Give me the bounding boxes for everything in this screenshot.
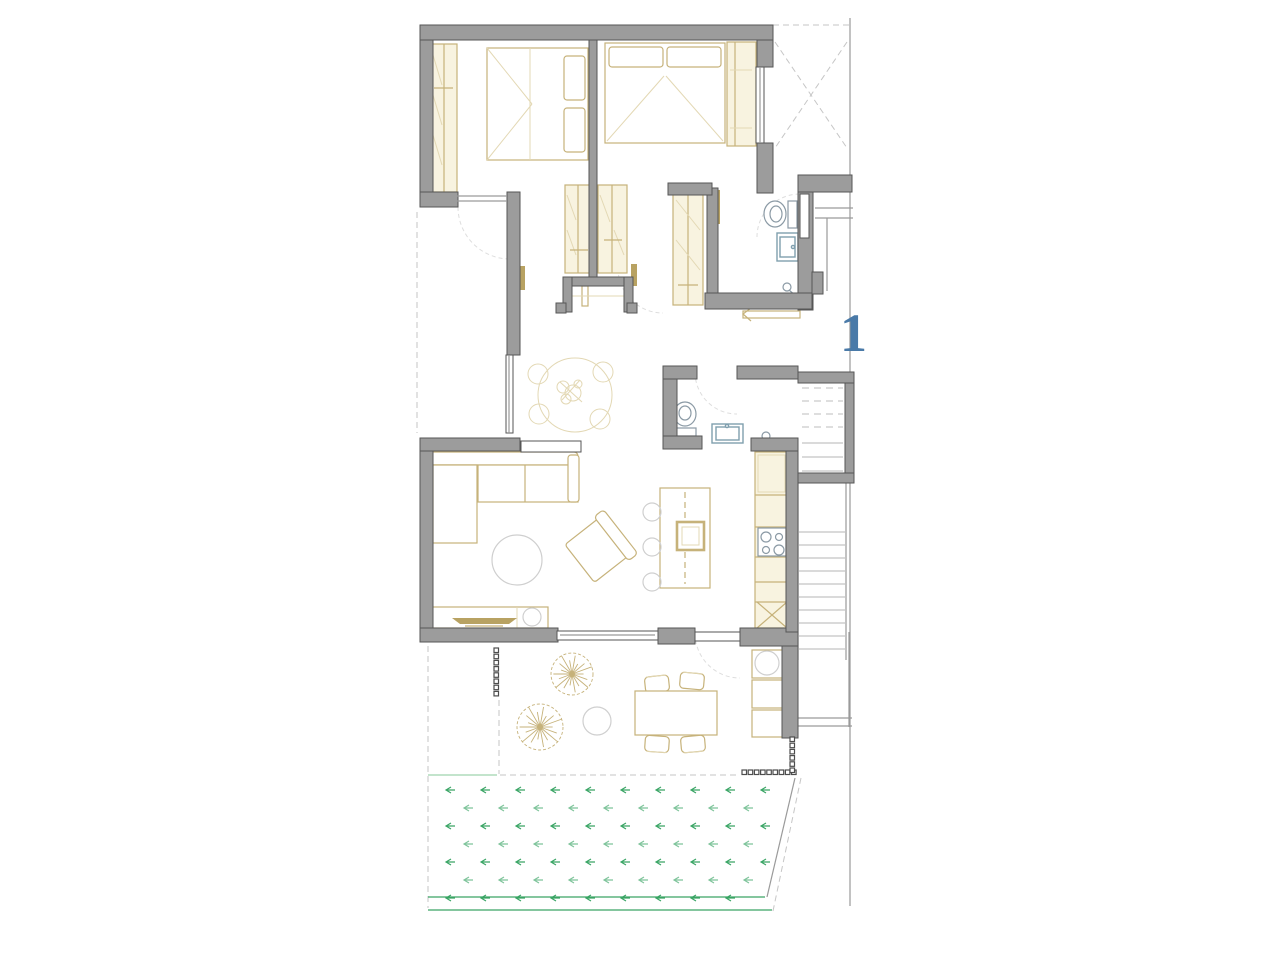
bath-door-inset [800,194,809,238]
grass-arrow-mark [569,841,578,847]
garden-outer-slant-dashed [773,778,801,911]
grass-arrow-mark [621,859,630,865]
grass-arrow-mark [516,859,525,865]
terrace [517,650,783,753]
grass-arrow-mark [621,787,630,793]
grass-arrow-mark [446,859,455,865]
grass-arrow-mark [586,895,595,901]
wall-bed-divider [589,40,597,278]
fence-tick [494,673,499,678]
wall-left-cap [420,192,458,207]
tv-cabinet-icon [432,607,548,628]
wall-stub-entry [812,272,823,294]
closet-niche-shelf [572,286,624,306]
grass-arrow-mark [656,859,665,865]
grass-arrow-mark [481,823,490,829]
garden [428,775,795,910]
grass-arrow-mark [656,895,665,901]
fence-tick [790,737,795,742]
closet-wall [563,277,633,286]
sofa-icon [428,452,579,543]
grass-arrow-mark [691,787,700,793]
wall-wc-bottom-l [663,436,702,449]
wall-wc-top-l [663,366,697,379]
grass-arrow-mark [674,841,683,847]
wall-living-bottom [420,628,558,642]
fence-tick [790,768,795,773]
fence-tick [494,648,499,653]
wall-stub-bottom [658,628,695,644]
dining-chair-icon [529,404,549,424]
fence-tick [790,762,795,767]
grass-arrow-mark [709,805,718,811]
grass-arrow-mark [691,895,700,901]
grass-arrow-mark [534,877,543,883]
sink-icon [712,424,743,443]
stool-icon [643,503,661,521]
double-bed-icon [605,43,725,143]
bedroom-2 [605,42,756,146]
grass-arrow-mark [481,895,490,901]
grass-arrow-mark [621,895,630,901]
wardrobe-icon [430,44,457,192]
living-room [428,452,638,628]
fence-tick [790,749,795,754]
pouf-icon [583,707,611,735]
grass-arrow-mark [604,841,613,847]
plant-icon [557,380,582,404]
tree-icon [517,704,563,750]
tree-icons [517,653,593,750]
fence-tick [494,654,499,659]
grass-arrow-mark [621,823,630,829]
grass-arrow-mark [516,823,525,829]
kitchen-island [660,488,710,588]
wall-bath-bottom [705,293,812,309]
grass-arrow-mark [744,805,753,811]
kitchen [643,452,788,628]
toilet-icon [764,201,797,228]
stool-icon [643,538,661,556]
grass-arrow-mark [516,895,525,901]
grass-arrow-mark [726,787,735,793]
closet-wall-foot [627,303,637,313]
grass-arrow-mark [744,877,753,883]
mirror-diagonal-2 [775,42,847,148]
shelf-unit-icon [727,42,756,146]
grass-arrow-mark [709,877,718,883]
grass-arrow-mark [604,805,613,811]
fence-tick [767,770,772,775]
grass-arrow-mark [744,841,753,847]
grass-arrow-mark [569,877,578,883]
wardrobe-icon [598,185,627,273]
floor-plan-drawing: 1 [0,0,1280,960]
hallway-storage [519,185,637,306]
outdoor-table-icon [635,691,717,735]
fence-tick [748,770,753,775]
grass-arrow-mark [464,877,473,883]
wall-bath-divider [707,188,718,293]
grass-arrow-mark [726,859,735,865]
sink-icon [777,233,798,261]
fence-tick [742,770,747,775]
grass-arrow-mark [481,859,490,865]
grass-arrow-mark [569,805,578,811]
fence-tick [779,770,784,775]
wardrobe-icon [565,185,591,273]
wall-wc-bottom-r [751,438,798,451]
outdoor-chair-icon [644,735,669,753]
fence-tick [773,770,778,775]
dining-chair-icon [590,409,610,429]
grass-arrow-mark [691,823,700,829]
grass-arrow-mark [551,823,560,829]
grass-arrow-mark [761,823,770,829]
grass-arrow-mark [691,859,700,865]
grass-arrow-mark [481,787,490,793]
wall-stair-top [798,372,854,383]
entry-door-icon [743,308,800,321]
grass-arrow-mark [499,841,508,847]
rug-icon [492,535,542,585]
decor-bowl-icon [523,608,541,626]
sliding-glass-door [695,632,740,641]
closet-wall-foot [556,303,566,313]
grass-arrow-mark [464,841,473,847]
stool-icon [643,573,661,591]
staircase [798,388,852,727]
grass-arrow-mark [726,895,735,901]
grass-arrow-mark [639,841,648,847]
floor-plan-page: 1 [0,0,1280,960]
bedroom1-door-arc [458,207,510,259]
outdoor-chair-icon [679,672,704,690]
fence-tick [494,685,499,690]
grass-arrow-mark [656,823,665,829]
grass-arrow-mark [446,787,455,793]
fence-tick [494,691,499,696]
dining-area [528,358,613,432]
island-sink-icon [677,522,704,550]
grass-arrow-mark [656,787,665,793]
fence-tick [494,667,499,672]
grass-arrow-mark [604,877,613,883]
wall-left-top [420,40,433,193]
fence-tick [785,770,790,775]
fence-tick [790,743,795,748]
grass-arrow-mark [534,841,543,847]
grass-arrow-mark [639,805,648,811]
fence-tick [790,756,795,761]
double-bed-icon [487,48,588,160]
outdoor-chair-icon [680,735,705,753]
wall-hall-left [507,192,520,355]
grass-arrow-mark [586,787,595,793]
wall-living-left [420,451,433,641]
wall-top [420,25,773,40]
wall-stair-bottom [798,473,854,483]
wall-stair-right [845,383,854,483]
grass-arrow-mark [761,787,770,793]
planter-boxes [752,650,783,737]
fence-tick [754,770,759,775]
grass-arrow-mark [709,841,718,847]
wall-closet-top [668,183,712,195]
grass-marks [446,787,770,901]
bedroom-1 [430,44,588,192]
outdoor-dining-set [635,672,717,753]
grass-arrow-mark [674,805,683,811]
wall-right-b [757,143,773,193]
wc-door-arc [695,372,737,414]
grass-arrow-mark [534,805,543,811]
tv-icon [452,618,517,624]
fence-tick [761,770,766,775]
grass-arrow-mark [674,877,683,883]
unit-number-label: 1 [840,303,867,363]
wall-bottom-right-v [782,646,798,738]
cooktop-icon [758,528,786,556]
wall-living-top [420,438,520,451]
fence-tick [494,679,499,684]
garden-slant-line [767,778,795,897]
grass-arrow-mark [586,859,595,865]
wall-wc-top-r [737,366,798,379]
wall-right-a [757,40,773,67]
armchair-icon [562,509,637,585]
wardrobe-icon [673,187,703,305]
tree-icon [551,653,593,695]
grass-arrow-mark [464,805,473,811]
grass-arrow-mark [639,877,648,883]
grass-arrow-mark [551,859,560,865]
wall-bath-top [798,175,852,192]
grass-arrow-mark [551,787,560,793]
window-sill-bar [521,441,581,452]
grass-arrow-mark [761,859,770,865]
grass-arrow-mark [499,805,508,811]
grass-arrow-mark [446,823,455,829]
grass-arrow-mark [586,823,595,829]
grass-arrow-mark [516,787,525,793]
grass-arrow-mark [551,895,560,901]
grass-arrow-mark [499,877,508,883]
fence-tick [494,660,499,665]
wall-kitchen-right [786,451,798,632]
grass-arrow-mark [446,895,455,901]
grass-arrow-mark [726,823,735,829]
